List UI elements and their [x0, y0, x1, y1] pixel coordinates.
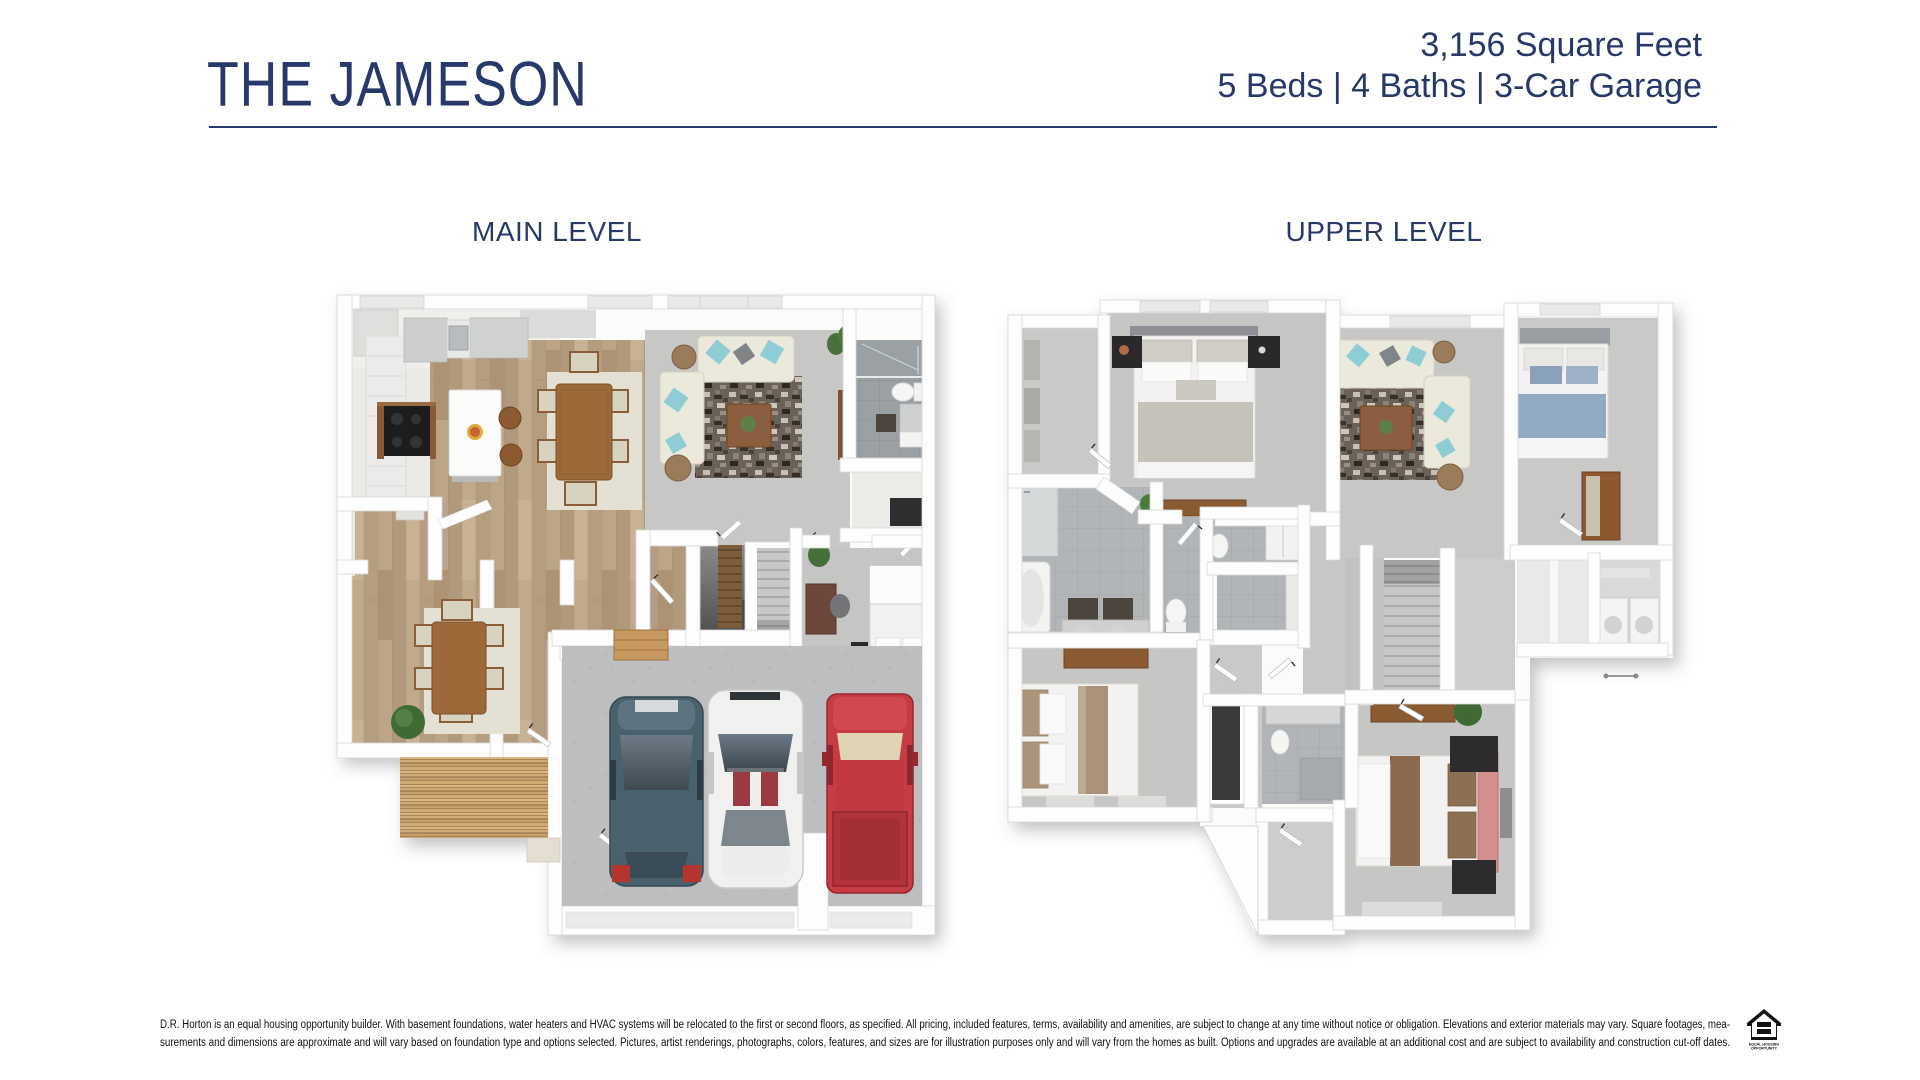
svg-text:OPPORTUNITY: OPPORTUNITY: [1751, 1047, 1778, 1051]
